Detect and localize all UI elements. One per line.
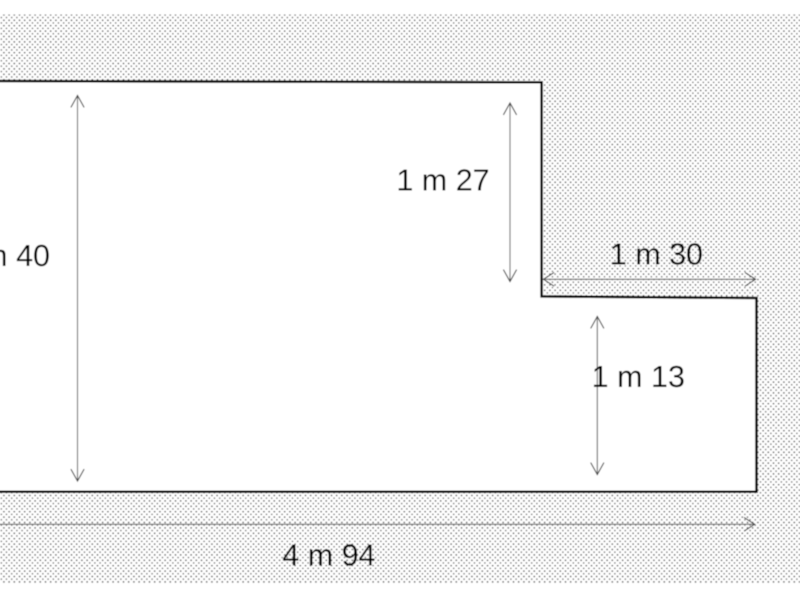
svg-text:1 m 27: 1 m 27 [396,164,489,198]
svg-text:1 m 13: 1 m 13 [592,360,685,394]
svg-text:2 m 40: 2 m 40 [0,239,50,273]
svg-text:4 m 94: 4 m 94 [282,539,375,573]
svg-text:1 m 30: 1 m 30 [610,238,703,272]
